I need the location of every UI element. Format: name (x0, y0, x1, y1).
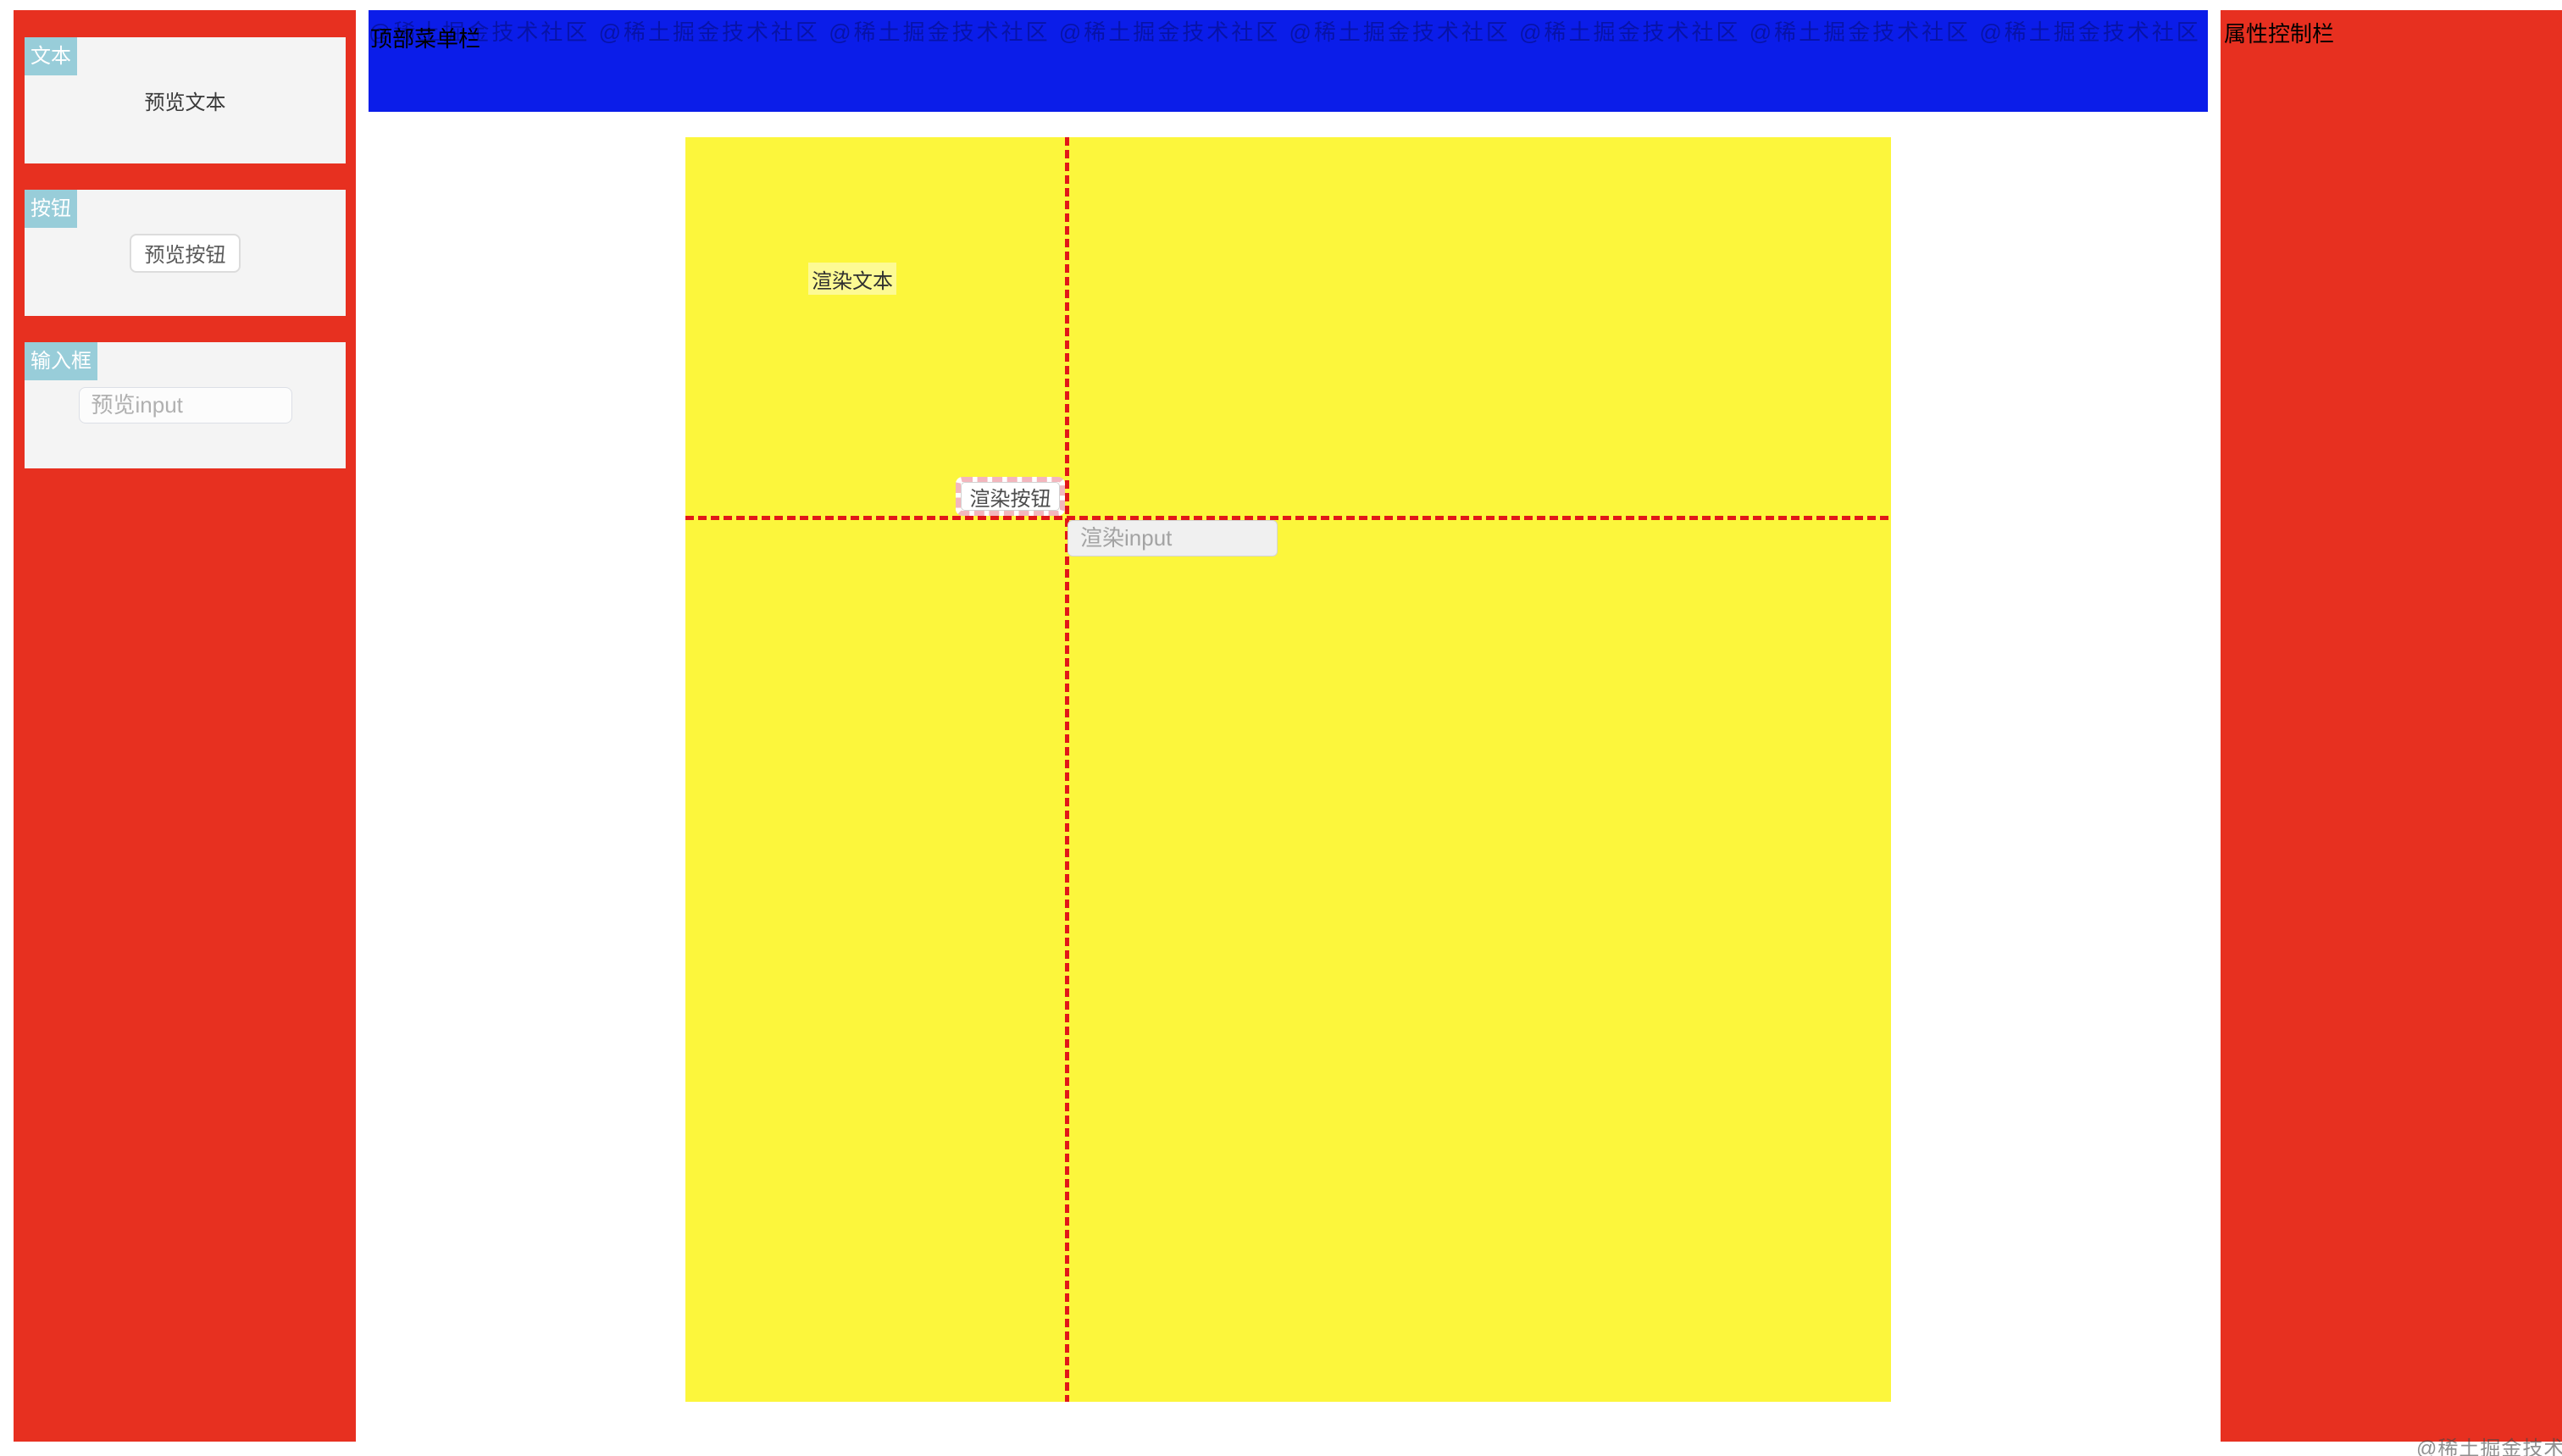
attribute-panel-title: 属性控制栏 (2224, 17, 2334, 48)
top-menubar: @稀土掘金技术社区 @稀土掘金技术社区 @稀土掘金技术社区 @稀土掘金技术社区 … (369, 10, 2208, 112)
rendered-text-element[interactable]: 渲染文本 (808, 263, 896, 295)
menubar-label: 顶部菜单栏 (370, 22, 480, 53)
preview-text[interactable]: 预览文本 (145, 86, 226, 115)
dragged-button-ghost[interactable]: 渲染按钮 (956, 477, 1065, 516)
component-preview-area: 预览按钮 (25, 190, 346, 316)
component-card-button[interactable]: 按钮 预览按钮 (25, 190, 346, 316)
lowcode-editor-screen: 文本 预览文本 按钮 预览按钮 输入框 @稀土掘金技术社区 @稀土掘金技术社区 … (0, 0, 2562, 1456)
attribute-control-panel: 属性控制栏 (2221, 10, 2562, 1442)
drop-guide-horizontal-line (685, 516, 1891, 520)
component-preview-area (25, 342, 346, 468)
drop-guide-vertical-line (1065, 137, 1069, 1402)
preview-input[interactable] (79, 387, 292, 424)
menubar-watermark-row: @稀土掘金技术社区 @稀土掘金技术社区 @稀土掘金技术社区 @稀土掘金技术社区 … (369, 15, 2208, 47)
rendered-button-element[interactable]: 渲染按钮 (961, 482, 1060, 511)
component-card-text[interactable]: 文本 预览文本 (25, 37, 346, 163)
component-library-panel: 文本 预览文本 按钮 预览按钮 输入框 (14, 10, 356, 1442)
preview-button[interactable]: 预览按钮 (130, 234, 241, 273)
component-card-input[interactable]: 输入框 (25, 342, 346, 468)
component-preview-area: 预览文本 (25, 37, 346, 163)
rendered-input-element[interactable] (1067, 520, 1278, 556)
render-canvas[interactable]: 渲染文本 渲染按钮 (685, 137, 1891, 1402)
